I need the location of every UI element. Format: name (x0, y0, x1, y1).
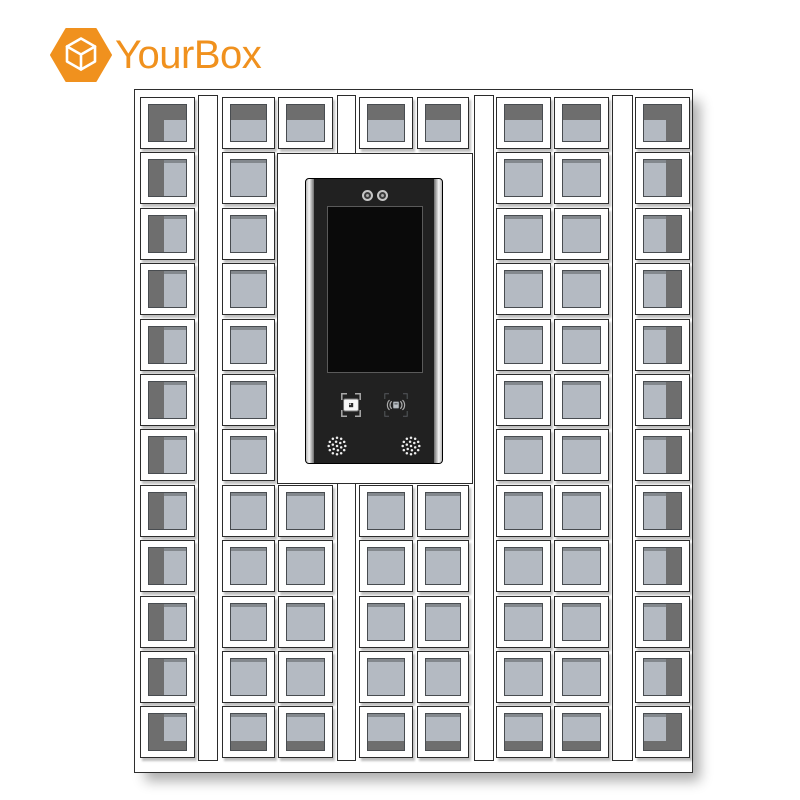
locker-door (286, 713, 325, 751)
locker-cell-column-7-row-2 (554, 152, 609, 204)
locker-cell-column-1-row-11 (140, 651, 195, 703)
locker-door (643, 603, 682, 641)
door-top-bevel (231, 160, 266, 163)
divider-strip-4 (612, 95, 633, 761)
door-shade-left (149, 493, 164, 529)
locker-door (148, 713, 187, 751)
door-shade-bottom (287, 741, 324, 750)
locker-cell-column-7-row-6 (554, 374, 609, 426)
locker-door (562, 713, 601, 751)
locker-cell-column-2-row-5 (222, 319, 275, 371)
door-top-bevel (426, 493, 460, 496)
panel-side-rail-right (434, 179, 442, 463)
door-top-bevel (368, 604, 404, 607)
locker-door (504, 104, 543, 142)
door-shade-top (149, 105, 186, 120)
door-shade-top (287, 105, 324, 120)
locker-cell-column-1-row-5 (140, 319, 195, 371)
door-shade-bottom (149, 741, 186, 750)
locker-cell-column-1-row-7 (140, 429, 195, 481)
door-top-bevel (231, 604, 266, 607)
locker-door (148, 104, 187, 142)
locker-door (367, 547, 405, 585)
locker-cell-column-7-row-7 (554, 429, 609, 481)
door-top-bevel (231, 548, 266, 551)
locker-door (562, 547, 601, 585)
locker-cell-column-5-row-1 (417, 97, 469, 149)
locker-cell-column-8-row-6 (635, 374, 690, 426)
door-shade-right (666, 216, 681, 252)
panel-side-rail-left (306, 179, 314, 463)
locker-cell-column-3-row-9 (278, 540, 333, 592)
locker-door (230, 326, 267, 364)
door-shade-left (149, 382, 164, 418)
speaker-grille-icon-1 (326, 435, 348, 457)
locker-cell-column-2-row-4 (222, 263, 275, 315)
door-top-bevel (505, 437, 542, 440)
door-shade-left (149, 327, 164, 363)
locker-door (148, 492, 187, 530)
locker-door (643, 326, 682, 364)
locker-cell-column-6-row-10 (496, 596, 551, 648)
locker-door (425, 492, 461, 530)
locker-door (562, 159, 601, 197)
locker-cell-column-8-row-5 (635, 319, 690, 371)
door-top-bevel (287, 714, 324, 717)
yourbox-cube-icon (50, 27, 112, 83)
door-top-bevel (563, 604, 600, 607)
locker-door (504, 713, 543, 751)
locker-door (562, 270, 601, 308)
qr-scanner-icon (341, 393, 361, 417)
door-top-bevel (426, 604, 460, 607)
locker-cell-column-2-row-3 (222, 208, 275, 260)
door-shade-right (666, 327, 681, 363)
locker-cell-column-8-row-9 (635, 540, 690, 592)
locker-door (425, 658, 461, 696)
locker-cell-column-1-row-9 (140, 540, 195, 592)
locker-door (230, 159, 267, 197)
door-top-bevel (505, 216, 542, 219)
locker-cell-column-2-row-1 (222, 97, 275, 149)
locker-door (425, 603, 461, 641)
locker-door (562, 492, 601, 530)
locker-door (230, 104, 267, 142)
locker-cell-column-6-row-4 (496, 263, 551, 315)
locker-door (504, 658, 543, 696)
door-top-bevel (231, 382, 266, 385)
locker-cell-column-5-row-10 (417, 596, 469, 648)
locker-cell-column-8-row-3 (635, 208, 690, 260)
locker-cell-column-1-row-2 (140, 152, 195, 204)
page: YourBox (0, 0, 800, 800)
door-top-bevel (563, 437, 600, 440)
locker-door (643, 713, 682, 751)
door-shade-top (563, 105, 600, 120)
panel-bay (277, 153, 473, 484)
locker-cell-column-3-row-11 (278, 651, 333, 703)
locker-cell-column-7-row-3 (554, 208, 609, 260)
locker-door (230, 215, 267, 253)
camera-lens-icon-1 (362, 190, 373, 201)
locker-cell-column-1-row-4 (140, 263, 195, 315)
door-shade-bottom (563, 741, 600, 750)
locker-cell-column-6-row-9 (496, 540, 551, 592)
locker-cell-column-1-row-8 (140, 485, 195, 537)
locker-cell-column-4-row-9 (359, 540, 413, 592)
door-top-bevel (426, 659, 460, 662)
door-top-bevel (231, 493, 266, 496)
locker-door (504, 326, 543, 364)
door-top-bevel (563, 659, 600, 662)
door-top-bevel (368, 659, 404, 662)
locker-door (286, 658, 325, 696)
locker-cell-column-2-row-9 (222, 540, 275, 592)
door-top-bevel (287, 548, 324, 551)
locker-door (504, 547, 543, 585)
locker-door (286, 547, 325, 585)
locker-cell-column-2-row-7 (222, 429, 275, 481)
locker-door (148, 547, 187, 585)
locker-door (367, 603, 405, 641)
locker-door (148, 658, 187, 696)
door-shade-right (666, 493, 681, 529)
locker-door (643, 547, 682, 585)
locker-door (504, 603, 543, 641)
locker-cell-column-2-row-10 (222, 596, 275, 648)
locker-door (148, 603, 187, 641)
locker-cell-column-5-row-11 (417, 651, 469, 703)
door-top-bevel (505, 382, 542, 385)
rfid-reader-icon (384, 393, 408, 417)
locker-door (643, 492, 682, 530)
locker-door (230, 547, 267, 585)
door-shade-bottom (231, 741, 266, 750)
locker-cell-column-7-row-8 (554, 485, 609, 537)
door-top-bevel (505, 160, 542, 163)
locker-door (148, 215, 187, 253)
locker-cell-column-3-row-12 (278, 706, 333, 758)
locker-door (562, 381, 601, 419)
door-top-bevel (505, 271, 542, 274)
locker-door (643, 159, 682, 197)
locker-cell-column-6-row-3 (496, 208, 551, 260)
locker-cell-column-8-row-7 (635, 429, 690, 481)
door-top-bevel (505, 714, 542, 717)
door-top-bevel (426, 548, 460, 551)
locker-door (367, 104, 405, 142)
door-shade-right (666, 382, 681, 418)
door-shade-bottom (505, 741, 542, 750)
divider-strip-1 (198, 95, 218, 761)
locker-door (148, 381, 187, 419)
brand-name: YourBox (115, 27, 261, 83)
door-top-bevel (287, 659, 324, 662)
locker-door (230, 713, 267, 751)
door-shade-right (666, 548, 681, 584)
locker-door (643, 215, 682, 253)
locker-door (562, 603, 601, 641)
speaker-grille-icon-2 (400, 435, 422, 457)
locker-cell-column-8-row-11 (635, 651, 690, 703)
locker-door (148, 270, 187, 308)
door-top-bevel (231, 216, 266, 219)
door-top-bevel (563, 216, 600, 219)
locker-cell-column-2-row-8 (222, 485, 275, 537)
locker-cell-column-2-row-2 (222, 152, 275, 204)
locker-cell-column-4-row-1 (359, 97, 413, 149)
locker-door (643, 658, 682, 696)
locker-door (643, 104, 682, 142)
divider-strip-3 (474, 95, 494, 761)
locker-cell-column-6-row-1 (496, 97, 551, 149)
door-shade-top (644, 105, 681, 120)
locker-cell-column-1-row-1 (140, 97, 195, 149)
locker-door (425, 547, 461, 585)
door-shade-bottom (644, 741, 681, 750)
locker-cell-column-6-row-7 (496, 429, 551, 481)
door-shade-right (666, 160, 681, 196)
door-shade-bottom (426, 741, 460, 750)
door-shade-top (505, 105, 542, 120)
locker-door (504, 381, 543, 419)
door-shade-left (149, 271, 164, 307)
locker-cell-column-6-row-8 (496, 485, 551, 537)
door-shade-right (666, 604, 681, 640)
door-shade-right (666, 659, 681, 695)
door-top-bevel (426, 714, 460, 717)
control-panel (305, 178, 443, 464)
locker-cell-column-7-row-10 (554, 596, 609, 648)
locker-door (504, 436, 543, 474)
locker-cell-column-5-row-12 (417, 706, 469, 758)
door-shade-right (666, 437, 681, 473)
locker-cell-column-7-row-12 (554, 706, 609, 758)
locker-door (504, 159, 543, 197)
camera-lens-icon-2 (377, 190, 388, 201)
locker-door (230, 603, 267, 641)
locker-door (504, 492, 543, 530)
door-top-bevel (505, 327, 542, 330)
door-shade-left (149, 216, 164, 252)
locker-cell-column-2-row-12 (222, 706, 275, 758)
locker-cell-column-7-row-9 (554, 540, 609, 592)
locker-cell-column-6-row-2 (496, 152, 551, 204)
locker-cell-column-8-row-4 (635, 263, 690, 315)
locker-door (425, 104, 461, 142)
locker-cell-column-2-row-6 (222, 374, 275, 426)
locker-cell-column-1-row-6 (140, 374, 195, 426)
door-shade-left (149, 160, 164, 196)
door-top-bevel (231, 437, 266, 440)
door-shade-left (149, 604, 164, 640)
locker-door (367, 658, 405, 696)
door-top-bevel (563, 493, 600, 496)
door-top-bevel (563, 327, 600, 330)
locker-door (562, 104, 601, 142)
locker-door (367, 492, 405, 530)
touch-screen (327, 206, 423, 373)
locker-cell-column-5-row-9 (417, 540, 469, 592)
parcel-locker-machine (134, 89, 693, 773)
locker-door (504, 270, 543, 308)
locker-door (230, 381, 267, 419)
locker-door (562, 326, 601, 364)
door-shade-left (149, 548, 164, 584)
locker-door (504, 215, 543, 253)
locker-door (230, 658, 267, 696)
locker-door (562, 436, 601, 474)
locker-cell-column-4-row-8 (359, 485, 413, 537)
locker-cell-column-6-row-12 (496, 706, 551, 758)
door-top-bevel (231, 271, 266, 274)
locker-cell-column-8-row-1 (635, 97, 690, 149)
brand-logo: YourBox (50, 27, 261, 83)
locker-door (367, 713, 405, 751)
locker-cell-column-8-row-12 (635, 706, 690, 758)
door-top-bevel (287, 604, 324, 607)
locker-door (562, 215, 601, 253)
locker-cell-column-3-row-8 (278, 485, 333, 537)
locker-door (230, 436, 267, 474)
locker-cell-column-3-row-1 (278, 97, 333, 149)
door-shade-left (149, 659, 164, 695)
locker-cell-column-3-row-10 (278, 596, 333, 648)
locker-cell-column-7-row-1 (554, 97, 609, 149)
locker-cell-column-4-row-12 (359, 706, 413, 758)
locker-door (643, 270, 682, 308)
locker-cell-column-1-row-10 (140, 596, 195, 648)
locker-cell-column-4-row-10 (359, 596, 413, 648)
door-top-bevel (368, 714, 404, 717)
locker-door (562, 658, 601, 696)
door-top-bevel (563, 548, 600, 551)
door-top-bevel (505, 659, 542, 662)
locker-cell-column-6-row-11 (496, 651, 551, 703)
door-top-bevel (368, 493, 404, 496)
door-shade-top (231, 105, 266, 120)
locker-cell-column-7-row-11 (554, 651, 609, 703)
locker-cell-column-6-row-6 (496, 374, 551, 426)
door-shade-left (149, 437, 164, 473)
locker-door (643, 436, 682, 474)
door-top-bevel (505, 548, 542, 551)
door-top-bevel (231, 714, 266, 717)
door-shade-right (666, 271, 681, 307)
locker-cell-column-1-row-12 (140, 706, 195, 758)
locker-cell-column-2-row-11 (222, 651, 275, 703)
door-top-bevel (563, 160, 600, 163)
door-top-bevel (231, 659, 266, 662)
locker-cell-column-4-row-11 (359, 651, 413, 703)
door-shade-bottom (368, 741, 404, 750)
locker-door (148, 436, 187, 474)
locker-cell-column-7-row-4 (554, 263, 609, 315)
locker-cell-column-7-row-5 (554, 319, 609, 371)
locker-cell-column-8-row-8 (635, 485, 690, 537)
door-top-bevel (505, 604, 542, 607)
door-top-bevel (287, 493, 324, 496)
locker-cell-column-1-row-3 (140, 208, 195, 260)
locker-door (643, 381, 682, 419)
locker-cell-column-8-row-2 (635, 152, 690, 204)
door-top-bevel (563, 382, 600, 385)
door-top-bevel (563, 714, 600, 717)
locker-cell-column-8-row-10 (635, 596, 690, 648)
locker-door (286, 603, 325, 641)
locker-door (230, 492, 267, 530)
door-shade-top (368, 105, 404, 120)
door-top-bevel (231, 327, 266, 330)
locker-door (230, 270, 267, 308)
door-top-bevel (505, 493, 542, 496)
locker-door (286, 492, 325, 530)
locker-door (425, 713, 461, 751)
locker-door (148, 326, 187, 364)
door-top-bevel (563, 271, 600, 274)
locker-cell-column-6-row-5 (496, 319, 551, 371)
locker-cell-column-5-row-8 (417, 485, 469, 537)
locker-door (148, 159, 187, 197)
door-shade-top (426, 105, 460, 120)
door-top-bevel (368, 548, 404, 551)
locker-door (286, 104, 325, 142)
